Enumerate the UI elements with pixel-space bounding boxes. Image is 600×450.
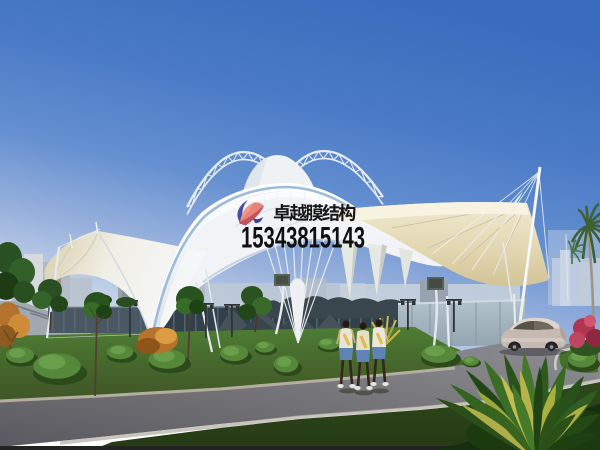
svg-text:15343815143: 15343815143 <box>241 222 365 255</box>
